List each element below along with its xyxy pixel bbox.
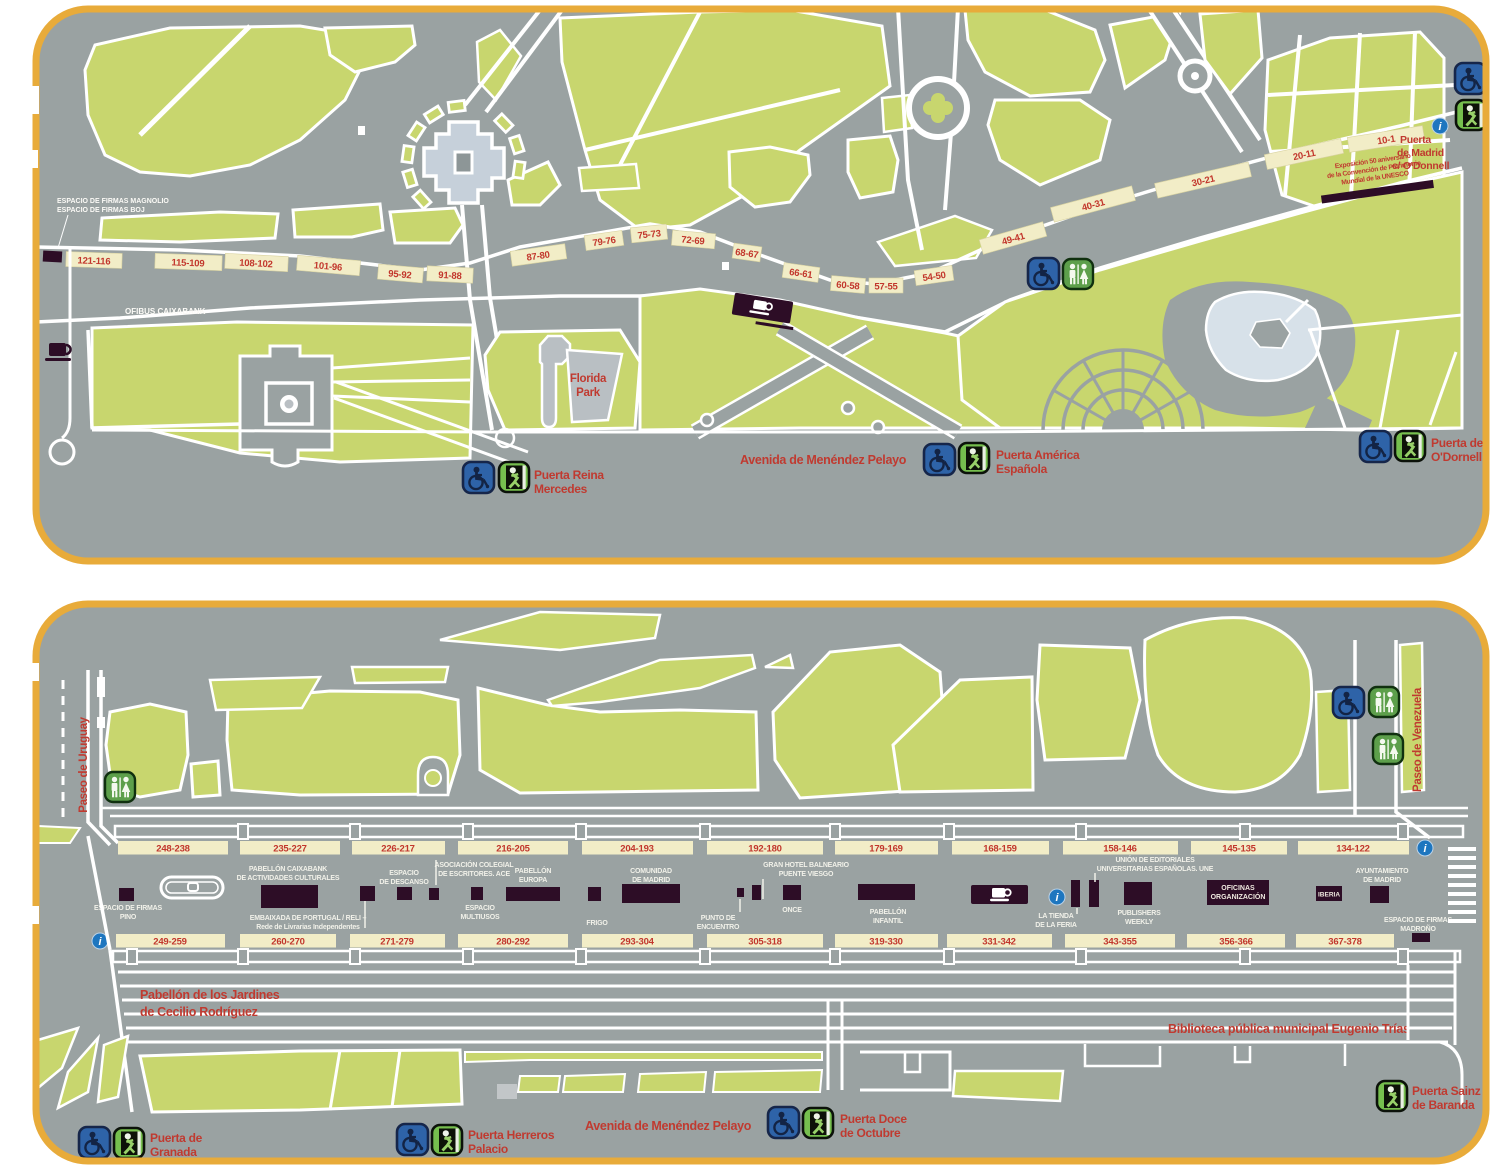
svg-text:PUNTO DE: PUNTO DE [701, 915, 736, 922]
svg-text:280-292: 280-292 [496, 937, 529, 948]
svg-text:PUENTE VIESGO: PUENTE VIESGO [779, 871, 834, 878]
svg-text:60-58: 60-58 [836, 279, 860, 292]
svg-text:91-88: 91-88 [438, 270, 462, 282]
svg-text:Puerta Reina: Puerta Reina [534, 468, 604, 482]
svg-text:Paseo de Uruguay: Paseo de Uruguay [78, 716, 90, 812]
svg-text:IBERIA: IBERIA [1318, 892, 1340, 899]
svg-text:248-238: 248-238 [156, 844, 189, 855]
svg-text:Puerta de: Puerta de [1431, 436, 1484, 450]
svg-text:Avenida de Menéndez Pelayo: Avenida de Menéndez Pelayo [740, 453, 907, 467]
svg-text:Rede de Livrarias Independente: Rede de Livrarias Independentes [256, 924, 360, 931]
svg-text:PABELLÓN: PABELLÓN [515, 866, 552, 875]
svg-text:c/ O'Donnell: c/ O'Donnell [1392, 160, 1450, 172]
svg-text:O'Dornell: O'Dornell [1431, 450, 1482, 464]
svg-text:Palacio: Palacio [468, 1142, 508, 1156]
svg-text:FRIGO: FRIGO [586, 920, 608, 927]
svg-text:145-135: 145-135 [1222, 844, 1256, 855]
svg-text:COMUNIDAD: COMUNIDAD [630, 868, 672, 875]
svg-text:72-69: 72-69 [681, 234, 705, 247]
svg-text:UNIÓN DE EDITORIALES: UNIÓN DE EDITORIALES [1115, 855, 1195, 864]
svg-text:EMBAIXADA DE PORTUGAL / RELI –: EMBAIXADA DE PORTUGAL / RELI – [250, 915, 367, 922]
svg-text:226-217: 226-217 [381, 844, 414, 855]
svg-text:Puerta Sainz: Puerta Sainz [1412, 1084, 1481, 1098]
svg-text:249-259: 249-259 [153, 937, 186, 948]
svg-text:95-92: 95-92 [388, 268, 412, 281]
svg-text:ESPACIO DE FIRMAS BOJ: ESPACIO DE FIRMAS BOJ [57, 207, 145, 214]
svg-text:Park: Park [576, 387, 601, 399]
svg-text:121-116: 121-116 [77, 255, 110, 267]
svg-text:MULTIUSOS: MULTIUSOS [461, 914, 500, 921]
svg-text:57-55: 57-55 [874, 282, 898, 293]
svg-text:WEEKLY: WEEKLY [1125, 919, 1154, 926]
svg-text:GRAN HOTEL BALNEARIO: GRAN HOTEL BALNEARIO [763, 862, 849, 869]
svg-text:356-366: 356-366 [1219, 937, 1252, 948]
svg-text:Puerta América: Puerta América [996, 448, 1080, 462]
svg-text:Florida: Florida [570, 373, 607, 385]
svg-text:Puerta de: Puerta de [150, 1131, 203, 1145]
svg-text:108-102: 108-102 [239, 258, 273, 271]
svg-text:OFIBUS CAIXABANK: OFIBUS CAIXABANK [125, 307, 206, 316]
svg-text:de Cecilio Rodríguez: de Cecilio Rodríguez [140, 1005, 258, 1019]
svg-text:ORGANIZACIÓN: ORGANIZACIÓN [1211, 892, 1266, 901]
svg-text:ASOCIACIÓN COLEGIAL: ASOCIACIÓN COLEGIAL [434, 860, 514, 869]
svg-text:PABELLÓN: PABELLÓN [870, 907, 907, 916]
svg-text:INFANTIL: INFANTIL [873, 918, 904, 925]
svg-text:235-227: 235-227 [273, 844, 306, 855]
svg-text:PINO: PINO [120, 914, 137, 921]
svg-text:PUBLISHERS: PUBLISHERS [1117, 910, 1161, 917]
svg-text:367-378: 367-378 [1328, 937, 1361, 948]
svg-text:DE MADRID: DE MADRID [632, 877, 670, 884]
svg-text:ENCUENTRO: ENCUENTRO [697, 924, 740, 931]
svg-text:ONCE: ONCE [782, 907, 802, 914]
svg-text:PABELLÓN CAIXABANK: PABELLÓN CAIXABANK [249, 864, 327, 873]
svg-text:DE MADRID: DE MADRID [1363, 877, 1401, 884]
svg-text:AYUNTAMIENTO: AYUNTAMIENTO [1356, 868, 1409, 875]
svg-text:158-146: 158-146 [1103, 844, 1136, 855]
svg-text:OFICINAS: OFICINAS [1221, 885, 1255, 892]
svg-text:de Octubre: de Octubre [840, 1126, 901, 1140]
svg-text:DE ESCRITORES. ACE: DE ESCRITORES. ACE [438, 871, 510, 878]
svg-text:260-270: 260-270 [271, 937, 304, 948]
svg-text:ESPACIO DE FIRMAS MAGNOLIO: ESPACIO DE FIRMAS MAGNOLIO [57, 198, 169, 205]
svg-text:343-355: 343-355 [1103, 937, 1137, 948]
svg-text:UNIVERSITARIAS ESPAÑOLAS. UNE: UNIVERSITARIAS ESPAÑOLAS. UNE [1097, 864, 1214, 873]
svg-text:LA TIENDA: LA TIENDA [1038, 913, 1073, 920]
svg-text:Pabellón de los Jardines: Pabellón de los Jardines [140, 988, 280, 1002]
svg-text:Puerta Herreros: Puerta Herreros [468, 1128, 555, 1142]
svg-text:EUROPA: EUROPA [519, 877, 547, 884]
svg-text:DE LA FERIA: DE LA FERIA [1035, 922, 1077, 929]
svg-text:DE ACTIVIDADES CULTURALES: DE ACTIVIDADES CULTURALES [237, 875, 340, 882]
svg-text:305-318: 305-318 [748, 937, 781, 948]
svg-text:168-159: 168-159 [983, 844, 1016, 855]
svg-text:179-169: 179-169 [869, 844, 902, 855]
svg-text:de Baranda: de Baranda [1412, 1098, 1475, 1112]
svg-text:319-330: 319-330 [869, 937, 902, 948]
svg-text:Granada: Granada [150, 1145, 197, 1159]
svg-text:134-122: 134-122 [1336, 844, 1369, 855]
svg-text:293-304: 293-304 [620, 937, 654, 948]
svg-text:Puerta Doce: Puerta Doce [840, 1112, 907, 1126]
svg-text:ESPACIO DE FIRMAS: ESPACIO DE FIRMAS [94, 905, 163, 912]
svg-text:ESPACIO: ESPACIO [389, 870, 419, 877]
svg-text:Biblioteca pública municipal E: Biblioteca pública municipal Eugenio Trí… [1168, 1022, 1410, 1036]
svg-text:MADROÑO: MADROÑO [1400, 924, 1436, 933]
svg-text:331-342: 331-342 [982, 937, 1015, 948]
svg-text:204-193: 204-193 [620, 844, 653, 855]
svg-text:192-180: 192-180 [748, 844, 781, 855]
svg-text:Mercedes: Mercedes [534, 482, 588, 496]
svg-text:Paseo de Venezuela: Paseo de Venezuela [1412, 687, 1424, 792]
svg-text:ESPACIO: ESPACIO [465, 905, 495, 912]
svg-text:271-279: 271-279 [380, 937, 413, 948]
svg-text:Española: Española [996, 462, 1048, 476]
svg-text:216-205: 216-205 [496, 844, 530, 855]
svg-text:115-109: 115-109 [171, 257, 204, 269]
svg-text:Avenida de Menéndez Pelayo: Avenida de Menéndez Pelayo [585, 1119, 752, 1133]
svg-text:Puerta: Puerta [1400, 134, 1431, 146]
svg-text:ESPACIO DE FIRMAS: ESPACIO DE FIRMAS [1384, 917, 1453, 924]
svg-text:DE DESCANSO: DE DESCANSO [379, 879, 429, 886]
svg-text:de Madrid: de Madrid [1397, 147, 1444, 159]
